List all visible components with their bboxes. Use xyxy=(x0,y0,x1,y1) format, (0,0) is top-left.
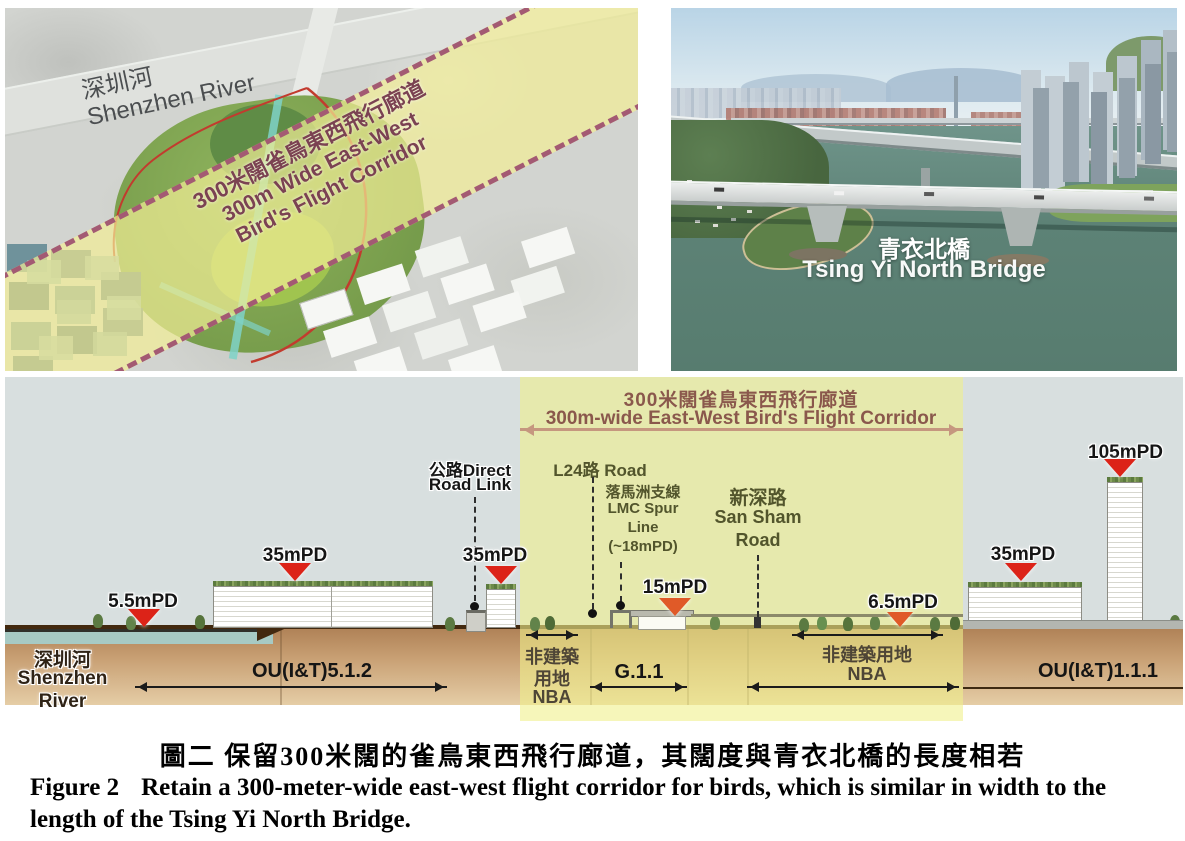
photo-panel: 青衣北橋 Tsing Yi North Bridge xyxy=(671,8,1177,371)
caption-en: Figure 2Retain a 300-meter-wide east-wes… xyxy=(30,772,1160,836)
trees xyxy=(93,614,103,628)
right-ground-road xyxy=(963,620,1183,629)
san-sham-label-zh: 新深路 xyxy=(688,483,828,510)
corridor-extent-arrow xyxy=(520,428,963,431)
lmc-label-1: 落馬洲支線 xyxy=(581,481,705,502)
building-35mpd-left xyxy=(213,586,433,628)
corridor-ground-deck-line xyxy=(691,614,963,617)
zone-ou512-arrow xyxy=(135,686,447,688)
caption-en-text: Retain a 300-meter-wide east-west flight… xyxy=(30,774,1106,833)
nba-right-upper-arrow xyxy=(792,634,943,636)
photo-distant-bridge xyxy=(731,118,1177,125)
marker-triangle-35mpd-slim xyxy=(485,566,517,584)
section-panel: 300米闊雀鳥東西飛行廊道 300m-wide East-West Bird's… xyxy=(5,377,1183,723)
san-sham-marker xyxy=(754,617,761,628)
lmc-label-2: LMC Spur xyxy=(581,500,705,517)
lmc-label-4: (~18mPD) xyxy=(581,538,705,555)
lmc-viaduct-portal xyxy=(610,610,632,628)
marker-label-35mpd-slim: 35mPD xyxy=(455,545,535,567)
marker-triangle-35mpd-right xyxy=(1005,563,1037,581)
building-105mpd-tower xyxy=(1107,482,1143,628)
map-panel: 300米闊雀鳥東西飛行廊道 300m Wide East-West Bird's… xyxy=(5,8,638,371)
san-sham-label-en2: Road xyxy=(688,530,828,551)
photo-right-hill xyxy=(1106,36,1177,91)
zone-ou111-boundary-line xyxy=(963,687,1183,689)
marker-triangle-105mpd xyxy=(1104,459,1136,477)
caption-zh: 圖二 保留300米闊的雀鳥東西飛行廊道，其闊度與青衣北橋的長度相若 xyxy=(0,736,1185,773)
photo-right-towers-dark xyxy=(1033,88,1049,188)
building-divider xyxy=(331,586,332,628)
l24-road-label: L24路 Road xyxy=(545,456,655,481)
photo-mountains-2 xyxy=(886,68,1036,102)
marker-triangle-6-5mpd xyxy=(887,612,913,627)
zone-ou512-label: OU(I&T)5.1.2 xyxy=(227,660,397,683)
marker-triangle-5-5mpd xyxy=(128,609,160,627)
san-sham-leader xyxy=(757,555,759,617)
photo-bridge-label-en: Tsing Yi North Bridge xyxy=(749,256,1099,284)
zone-g11-arrow xyxy=(590,686,687,688)
zone-g11-label: G.1.1 xyxy=(599,661,679,684)
river-name-en2: River xyxy=(15,691,110,713)
marker-label-6-5mpd: 6.5mPD xyxy=(863,592,943,614)
g11-low-building xyxy=(638,616,686,630)
lmc-label-3: Line xyxy=(581,519,705,536)
direct-road-link-label-2: Road Link xyxy=(410,475,530,495)
photo-bridge-vehicles xyxy=(714,188,724,192)
section-river-bank xyxy=(257,626,291,641)
nba-right-label-2: NBA xyxy=(787,664,947,685)
lmc-leader xyxy=(620,562,622,602)
building-35mpd-slim xyxy=(486,589,516,628)
section-corridor-title-en: 300m-wide East-West Bird's Flight Corrid… xyxy=(521,408,961,430)
san-sham-label-en1: San Sham xyxy=(688,507,828,528)
figure-page: 300米闊雀鳥東西飛行廊道 300m Wide East-West Bird's… xyxy=(0,0,1185,841)
caption-en-figure-label: Figure 2 xyxy=(30,774,119,801)
section-river-water xyxy=(5,629,273,644)
marker-label-15mpd: 15mPD xyxy=(635,577,715,599)
nba-right-lower-arrow xyxy=(747,686,959,688)
nba-left-label-3: NBA xyxy=(512,687,592,708)
direct-road-link-pier xyxy=(466,610,486,632)
nba-left-arrow xyxy=(526,634,578,636)
marker-triangle-35mpd-left xyxy=(279,563,311,581)
marker-triangle-15mpd xyxy=(659,598,691,616)
river-name-en1: Shenzhen xyxy=(15,668,110,690)
zone-ou111-label: OU(I&T)1.1.1 xyxy=(1018,660,1178,683)
l24-road-dot xyxy=(588,609,597,618)
lmc-dot xyxy=(616,601,625,610)
